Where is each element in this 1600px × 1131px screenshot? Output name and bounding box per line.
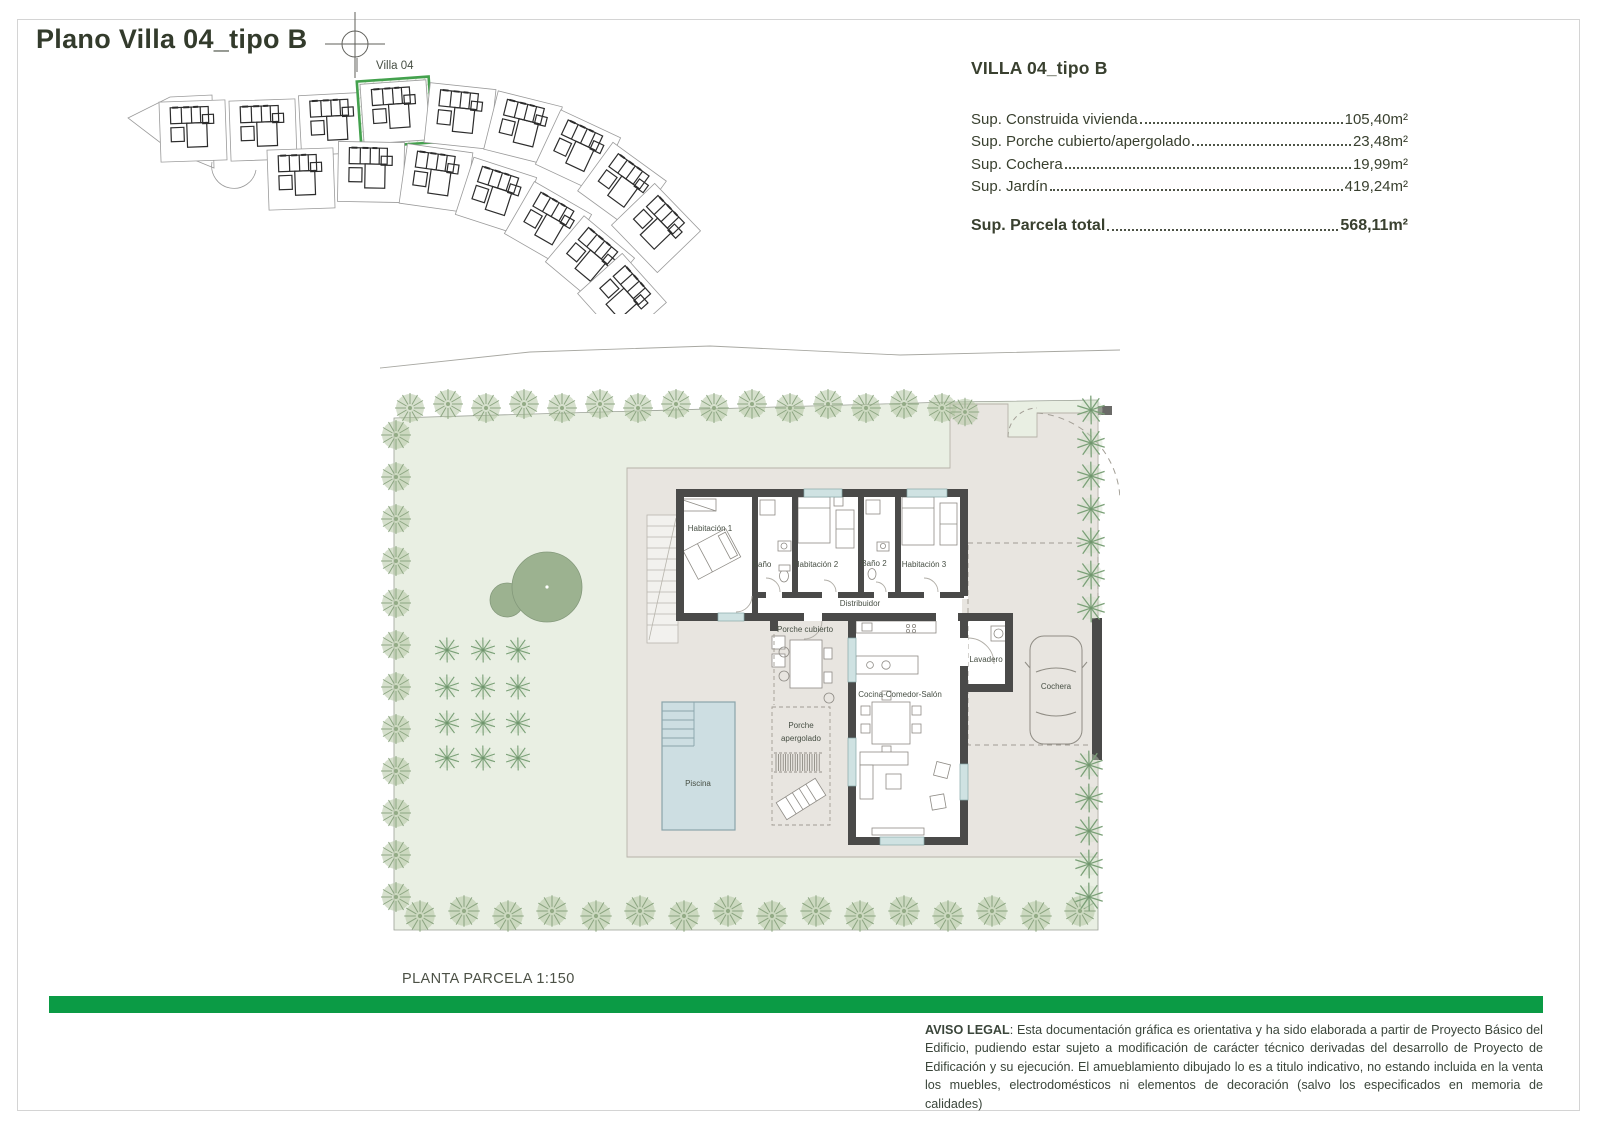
info-row-value: 419,24m² — [1345, 178, 1408, 195]
pool — [662, 702, 735, 830]
parcel-floor-plan: Habitación 1 Baño Habitación 2 Baño 2 Ha… — [380, 340, 1120, 960]
site-villa — [159, 100, 227, 162]
exterior-stairs — [647, 515, 678, 643]
room-label-habitacion3: Habitación 3 — [902, 560, 947, 569]
info-row-label: Sup. Construida vivienda — [971, 111, 1138, 128]
info-total-row: Sup. Parcela total 568,11m² — [971, 211, 1408, 235]
room-label-porche-apergolado-line1: Porche — [788, 721, 814, 730]
scale-label: PLANTA PARCELA 1:150 — [402, 971, 575, 987]
site-villas — [159, 77, 701, 314]
info-total-label: Sup. Parcela total — [971, 217, 1105, 235]
info-row-value: 105,40m² — [1345, 111, 1408, 128]
info-row: Sup. Cochera 19,99m² — [971, 150, 1408, 173]
site-villa-04-highlighted — [357, 77, 433, 148]
site-villa — [337, 141, 404, 202]
legal-notice: AVISO LEGAL: Esta documentación gráfica … — [925, 1021, 1543, 1113]
site-key-plan: Villa 04 — [120, 58, 770, 314]
room-label-cocina: Cocina-Comedor-Salón — [858, 690, 942, 699]
dotted-leader — [1065, 167, 1351, 169]
vegetation-glyph — [433, 389, 463, 419]
room-label-cochera: Cochera — [1041, 682, 1072, 691]
info-row: Sup. Porche cubierto/apergolado 23,48m² — [971, 128, 1408, 151]
green-accent-bar — [49, 996, 1543, 1013]
legal-notice-label: AVISO LEGAL — [925, 1023, 1010, 1037]
info-row-label: Sup. Porche cubierto/apergolado — [971, 133, 1190, 150]
info-row-label: Sup. Cochera — [971, 156, 1063, 173]
room-label-porche-cubierto: Porche cubierto — [777, 625, 834, 634]
info-total-value: 568,11m² — [1340, 217, 1408, 235]
room-label-bano2: Baño 2 — [861, 559, 887, 568]
room-label-porche-apergolado-line2: apergolado — [781, 734, 822, 743]
room-label-lavadero: Lavadero — [969, 655, 1003, 664]
dotted-leader — [1140, 122, 1343, 124]
page-title: Plano Villa 04_tipo B — [36, 24, 307, 55]
room-label-habitacion1: Habitación 1 — [688, 524, 733, 533]
info-row: Sup. Construida vivienda 105,40m² — [971, 105, 1408, 128]
site-villa — [267, 148, 335, 210]
info-row-value: 19,99m² — [1353, 156, 1408, 173]
info-row-label: Sup. Jardín — [971, 178, 1048, 195]
room-label-habitacion2: Habitación 2 — [794, 560, 839, 569]
info-row: Sup. Jardín 419,24m² — [971, 173, 1408, 196]
villa04-label: Villa 04 — [376, 60, 414, 72]
room-label-distribuidor: Distribuidor — [840, 599, 881, 608]
surface-info-panel: VILLA 04_tipo B Sup. Construida vivienda… — [971, 58, 1408, 235]
info-row-value: 23,48m² — [1353, 133, 1408, 150]
site-villa — [424, 83, 496, 150]
info-heading: VILLA 04_tipo B — [971, 58, 1408, 79]
dotted-leader — [1050, 189, 1343, 191]
dotted-leader — [1192, 144, 1351, 146]
site-culdesac — [212, 162, 256, 188]
dotted-leader — [1107, 229, 1338, 231]
room-label-bano1: Baño — [753, 560, 772, 569]
room-label-piscina: Piscina — [685, 779, 711, 788]
legal-notice-text: : Esta documentación gráfica es orientat… — [925, 1023, 1543, 1111]
terrain-line — [380, 346, 1120, 368]
